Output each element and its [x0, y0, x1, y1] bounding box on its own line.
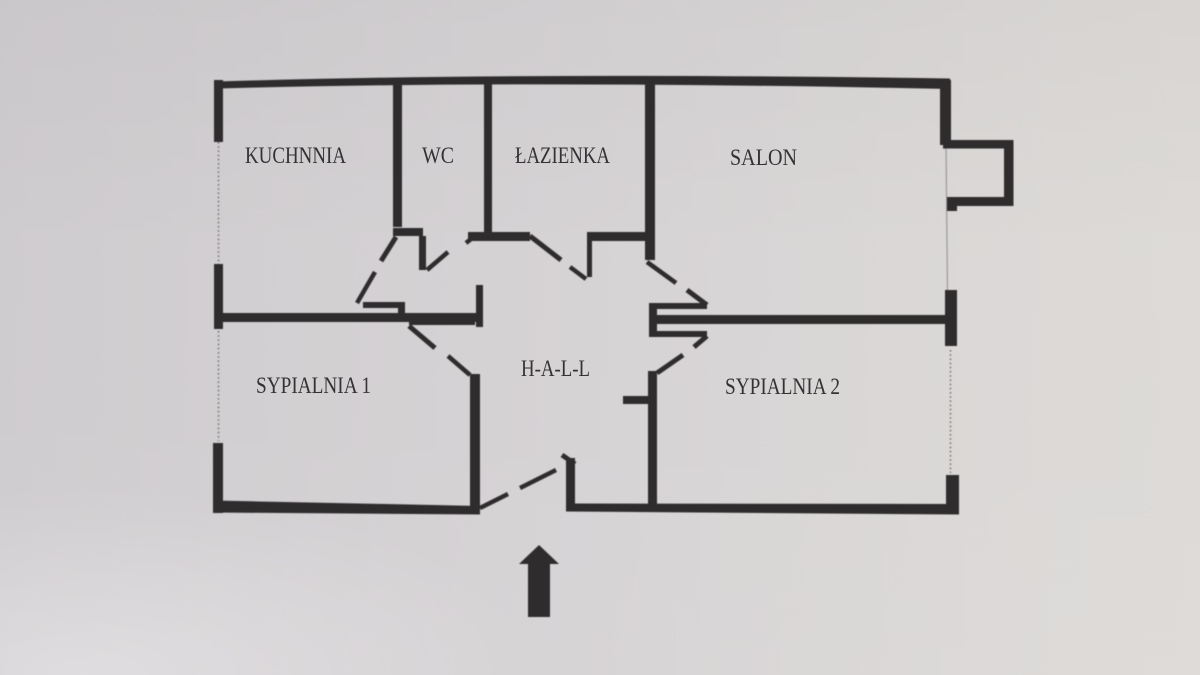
svg-text:WC: WC — [422, 143, 454, 168]
svg-text:KUCHNNIA: KUCHNNIA — [245, 143, 346, 168]
svg-text:H-A-L-L: H-A-L-L — [521, 356, 590, 381]
svg-text:SYPIALNIA 2: SYPIALNIA 2 — [725, 374, 840, 399]
svg-text:ŁAZIENKA: ŁAZIENKA — [515, 143, 610, 168]
svg-text:SALON: SALON — [730, 145, 797, 170]
svg-text:SYPIALNIA 1: SYPIALNIA 1 — [256, 373, 371, 398]
